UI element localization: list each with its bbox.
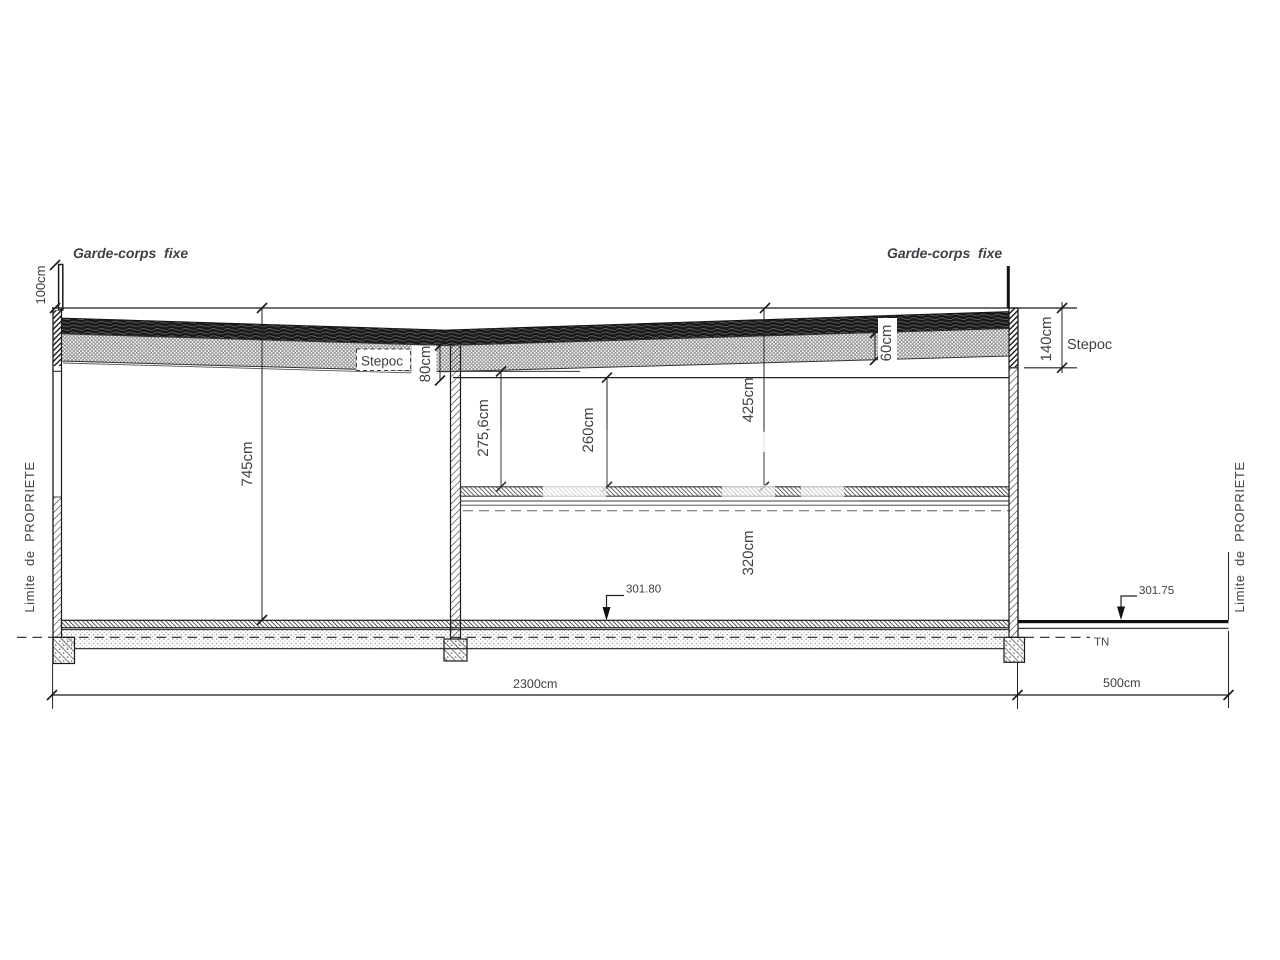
svg-text:2300cm: 2300cm: [513, 677, 557, 691]
svg-text:80cm: 80cm: [417, 346, 434, 383]
svg-text:301.80: 301.80: [626, 584, 661, 596]
svg-text:425cm: 425cm: [740, 377, 757, 422]
svg-text:320cm: 320cm: [740, 530, 757, 575]
svg-text:60cm: 60cm: [878, 325, 895, 362]
svg-text:140cm: 140cm: [1038, 316, 1055, 361]
svg-text:Garde-corps fixe: Garde-corps fixe: [73, 245, 188, 261]
svg-text:301.75: 301.75: [1139, 585, 1174, 597]
svg-text:Limite de PROPRIETE: Limite de PROPRIETE: [1232, 461, 1247, 612]
svg-text:260cm: 260cm: [580, 407, 597, 452]
svg-text:Stepoc: Stepoc: [1067, 337, 1112, 353]
svg-text:100cm: 100cm: [33, 265, 48, 304]
svg-text:Stepoc: Stepoc: [361, 354, 403, 369]
svg-text:500cm: 500cm: [1103, 676, 1141, 690]
svg-text:275,6cm: 275,6cm: [475, 399, 492, 457]
svg-text:Garde-corps fixe: Garde-corps fixe: [887, 245, 1002, 261]
svg-text:745cm: 745cm: [239, 441, 256, 486]
svg-text:TN: TN: [1094, 637, 1109, 649]
svg-text:Limite de PROPRIETE: Limite de PROPRIETE: [22, 461, 37, 612]
